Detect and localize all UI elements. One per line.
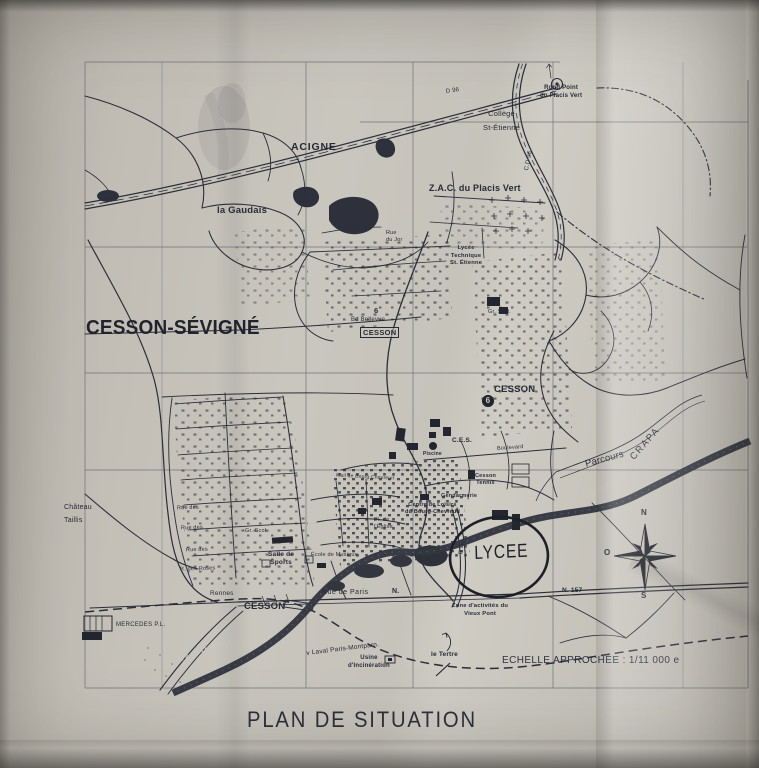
label-rennes: Rennes bbox=[210, 590, 234, 598]
label-mercedes-pl: MERCEDES P.L. bbox=[116, 622, 165, 630]
compass-south-label: S bbox=[641, 591, 647, 601]
label-rue-de-paris: Rue de Paris bbox=[322, 589, 368, 598]
label-cesson-boxed: CESSON bbox=[360, 327, 399, 338]
landmark-buildings bbox=[82, 297, 529, 676]
label-n-route: N. bbox=[392, 588, 399, 597]
map-linework bbox=[0, 0, 759, 768]
label-rue-des-3: Rue des bbox=[186, 547, 208, 555]
label-cesson-sevigne: CESSON-SÉVIGNÉ bbox=[86, 316, 260, 341]
label-la-gaudais: la Gaudais bbox=[217, 205, 267, 217]
label-n157: N. 157 bbox=[562, 587, 582, 595]
label-zone-activites: Zone d'activités du Vieux Pont bbox=[452, 602, 508, 618]
label-zac-placis-vert: Z.A.C. du Placis Vert bbox=[429, 183, 521, 194]
label-cesson-tennis: Cesson Tennis bbox=[475, 473, 496, 488]
label-le-tertre: le Tertre bbox=[431, 651, 458, 659]
label-groupe-scolaire-est: Gr. Scol. bbox=[488, 309, 511, 316]
label-cesson-gare: CESSON bbox=[244, 601, 285, 613]
label-groupe-scolaire-ouest: Gr. Scol. bbox=[245, 528, 268, 535]
label-cesson-est: CESSON bbox=[494, 384, 535, 396]
label-usine-incineration: Usine d'Incinération bbox=[348, 655, 390, 671]
label-rue-des-roses: R. des Roses bbox=[180, 565, 216, 573]
label-rue-des-1: Rue des bbox=[177, 505, 199, 513]
label-bus-line-6: 6 bbox=[374, 306, 378, 315]
compass-north-label: N bbox=[641, 508, 647, 518]
label-centre-loisirs: Centre de Loisirs du Bourg-Chevreuil bbox=[405, 502, 460, 516]
label-college-st-etienne: Collège St-Étienne bbox=[483, 107, 520, 135]
label-salle-de-sports: Salle de Sports bbox=[268, 551, 294, 568]
label-rue-des-2: Rue des bbox=[181, 525, 203, 533]
scale-note: ECHELLE APPROCHÉE : 1/11 000 e bbox=[502, 655, 679, 668]
label-rue-du-jor: Rue du Jor bbox=[386, 230, 403, 243]
label-ecole-de-musique: École de Musique bbox=[311, 552, 358, 559]
label-gendarmerie: Gendarmerie bbox=[441, 493, 477, 500]
label-piscine: Piscine bbox=[423, 451, 442, 457]
label-lycee-technique: Lycée Technique St. Étienne bbox=[450, 245, 482, 268]
label-lycee: LYCEE bbox=[474, 540, 529, 566]
label-place-eglise: Pl. de l'Église bbox=[374, 517, 393, 531]
page-title: PLAN DE SITUATION bbox=[247, 706, 477, 734]
label-rond-point: Rond Point du Placis Vert bbox=[540, 84, 582, 100]
label-chateau-taillis: Château Taillis bbox=[64, 502, 92, 527]
label-ces: C.E.S. bbox=[452, 437, 472, 445]
compass-west-label: O bbox=[604, 548, 610, 558]
scanned-map-photo: ACIGNE Rond Point du Placis Vert Collège… bbox=[0, 0, 759, 768]
label-bd-bellevue: Bd Bellevue bbox=[351, 317, 385, 325]
label-acigne: ACIGNE bbox=[291, 141, 337, 154]
label-marker-6: 6 bbox=[482, 395, 494, 407]
compass-rose-icon bbox=[614, 524, 676, 590]
